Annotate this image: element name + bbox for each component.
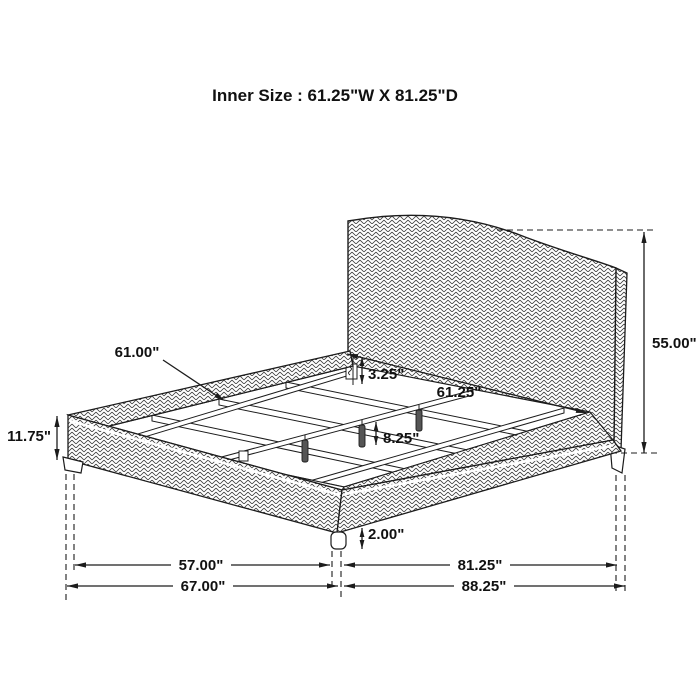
foot-leg-label: 2.00" [368, 526, 404, 543]
inner-width-label: 61.25" [437, 384, 482, 401]
dim-overall-depth: 88.25" [344, 577, 625, 595]
dim-depth-leg-to-headboard: 81.25" [344, 556, 617, 574]
diagram-title: Inner Size : 61.25"W X 81.25"D [212, 86, 458, 105]
dimension-diagram-page: Inner Size : 61.25"W X 81.25"D [0, 0, 700, 700]
center-leg [302, 440, 308, 462]
headboard-height-label: 55.00" [652, 335, 697, 352]
side-rail-height-label: 11.75" [7, 428, 51, 445]
overall-width-label: 67.00" [181, 578, 226, 595]
dim-width-between-legs: 57.00" [75, 556, 330, 574]
dim-overall-width: 67.00" [67, 577, 338, 595]
center-leg [359, 425, 365, 447]
slat-length-label: 61.00" [115, 344, 160, 361]
dim-headboard-height: 55.00" [641, 232, 696, 453]
dim-foot-leg: 2.00" [360, 526, 405, 549]
foot-corner-leg [331, 532, 346, 549]
dim-side-rail-height: 11.75" [7, 416, 59, 460]
slat-drop-label: 3.25" [368, 366, 404, 383]
center-leg [416, 410, 422, 431]
center-leg-label: 8.25" [383, 430, 419, 447]
bed-dimension-diagram: Inner Size : 61.25"W X 81.25"D [0, 0, 700, 700]
depth-leg-to-headboard-label: 81.25" [458, 557, 503, 574]
overall-depth-label: 88.25" [462, 578, 507, 595]
width-between-legs-label: 57.00" [179, 557, 224, 574]
slat-bracket [239, 451, 248, 461]
